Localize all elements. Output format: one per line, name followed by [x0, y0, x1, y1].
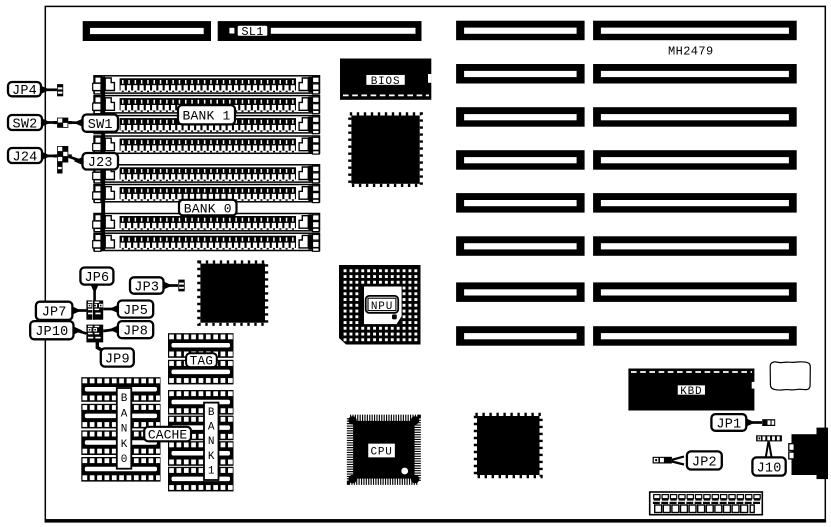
- svg-text:KBD: KBD: [680, 386, 702, 398]
- svg-text:JP5: JP5: [123, 304, 148, 319]
- svg-text:JP4: JP4: [12, 84, 37, 99]
- svg-text:SL1: SL1: [241, 25, 263, 39]
- svg-text:JP10: JP10: [35, 325, 68, 340]
- svg-text:K: K: [121, 439, 128, 451]
- svg-text:N: N: [208, 436, 215, 448]
- svg-text:A: A: [121, 408, 128, 420]
- svg-text:1: 1: [208, 465, 215, 477]
- svg-text:JP8: JP8: [123, 325, 148, 340]
- svg-text:JP7: JP7: [42, 306, 67, 321]
- svg-text:CACHE: CACHE: [148, 428, 188, 443]
- svg-text:N: N: [121, 424, 128, 436]
- svg-text:0: 0: [121, 454, 128, 466]
- svg-text:BANK 0: BANK 0: [184, 201, 232, 216]
- svg-text:SW1: SW1: [88, 118, 113, 133]
- svg-text:JP9: JP9: [105, 352, 130, 367]
- svg-text:B: B: [121, 393, 128, 405]
- svg-text:BIOS: BIOS: [371, 76, 401, 88]
- svg-text:BANK 1: BANK 1: [182, 108, 230, 123]
- svg-text:K: K: [208, 451, 215, 463]
- svg-text:J24: J24: [13, 150, 38, 165]
- svg-text:A: A: [208, 422, 215, 434]
- svg-text:JP1: JP1: [716, 417, 741, 432]
- svg-text:TAG: TAG: [190, 355, 213, 369]
- svg-text:JP3: JP3: [134, 280, 159, 295]
- svg-text:JP6: JP6: [84, 271, 109, 286]
- svg-text:B: B: [208, 407, 215, 419]
- svg-text:CPU: CPU: [370, 446, 392, 458]
- svg-text:J10: J10: [757, 461, 782, 476]
- svg-text:SW2: SW2: [13, 117, 38, 132]
- svg-text:NPU: NPU: [371, 301, 393, 313]
- svg-text:J23: J23: [88, 156, 113, 171]
- svg-text:JP2: JP2: [692, 455, 717, 470]
- svg-text:MH2479: MH2479: [668, 45, 714, 59]
